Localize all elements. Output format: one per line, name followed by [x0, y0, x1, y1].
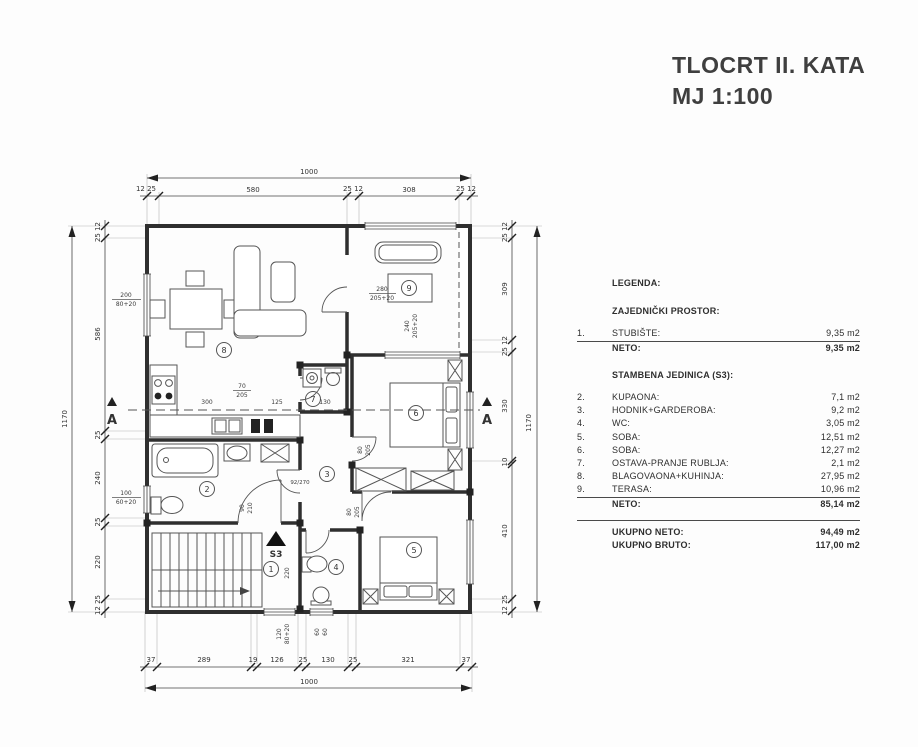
legend-row: 4. WC: 3,05 m2 — [577, 417, 860, 430]
label-d80a-sub: 205 — [365, 444, 372, 456]
row-number: 1. — [577, 327, 612, 340]
dim-left-5: 220 — [94, 555, 102, 568]
label-w240-sub: 205+20 — [412, 314, 419, 338]
dim-92-270: 92/270 — [290, 480, 310, 486]
blueprint-page: 1000 12 25 580 25 12 308 25 12 37 289 19… — [0, 0, 918, 747]
label-d80b-sub: 205 — [354, 506, 361, 518]
dim-top-0: 12 25 — [136, 185, 156, 193]
dim-bot-8: 37 — [462, 656, 471, 664]
bathtub — [152, 444, 218, 477]
dim-left-overall: 1170 — [61, 410, 69, 428]
room-3: 3 — [324, 470, 329, 479]
legend-divider — [577, 520, 860, 521]
label-w120-sub: 80+20 — [284, 624, 291, 644]
dim-bot-6: 25 — [349, 656, 358, 664]
stair-mark-label: S3 — [270, 550, 283, 560]
entrance-marker: S3 — [266, 531, 286, 560]
washer — [303, 368, 341, 387]
legend-row: 7. OSTAVA-PRANJE RUBLJA: 2,1 m2 — [577, 457, 860, 470]
legend-row: 3. HODNIK+GARDEROBA: 9,2 m2 — [577, 404, 860, 417]
dim-300: 300 — [201, 399, 213, 406]
dim-top-overall: 1000 — [300, 168, 318, 176]
dim-left-4: 25 — [94, 518, 102, 527]
dim-top-1: 580 — [246, 186, 259, 194]
dim-bot-7: 321 — [401, 656, 414, 664]
legend-row: 9. TERASA: 10,96 m2 — [577, 483, 860, 497]
legend-row: 5. SOBA: 12,51 m2 — [577, 431, 860, 444]
row-label: STUBIŠTE: — [612, 327, 798, 340]
label-d90: 90 — [239, 504, 246, 512]
label-w240: 240 — [404, 320, 411, 332]
legend-common-total: NETO: 9,35 m2 — [577, 342, 860, 355]
drawing-title: TLOCRT II. KATA — [672, 50, 865, 81]
dim-right-1: 309 — [501, 282, 509, 295]
sofa — [234, 246, 306, 338]
wardrobe-xbox — [356, 468, 454, 491]
stairs — [152, 533, 262, 607]
dim-130: 130 — [319, 399, 331, 406]
label-w100-sub: 60+20 — [116, 499, 136, 506]
legend-total-neto: UKUPNO NETO: 94,49 m2 — [577, 526, 860, 539]
legend-total-bruto: UKUPNO BRUTO: 117,00 m2 — [577, 539, 860, 552]
dim-bot-5: 130 — [321, 656, 334, 664]
dining-table-set — [150, 271, 239, 347]
label-w280-sub: 205+20 — [370, 295, 394, 302]
row-value: 9,35 m2 — [798, 327, 860, 340]
total-label: NETO: — [612, 342, 798, 355]
dim-top-2: 25 12 — [343, 185, 363, 193]
dim-bot-2: 19 — [249, 656, 258, 664]
label-d70: 70 — [238, 383, 246, 390]
dim-right-6: 12 25 — [501, 595, 509, 615]
room-9: 9 — [406, 284, 411, 293]
bath-shelf-xbox — [261, 444, 289, 462]
dim-right-5: 410 — [501, 524, 509, 537]
legend-row: 8. BLAGOVAONA+KUHINJA: 27,95 m2 — [577, 470, 860, 483]
label-w200: 200 — [120, 292, 132, 299]
room-1: 1 — [268, 565, 273, 574]
dim-right-3: 330 — [501, 399, 509, 412]
dim-left-6: 12 25 — [94, 595, 102, 615]
label-d80a: 80 — [357, 446, 364, 454]
toilet-room2 — [151, 497, 183, 515]
label-w120-group: 120 80+20 — [276, 624, 291, 644]
room-2: 2 — [204, 485, 209, 494]
dim-bottom-overall: 1000 — [300, 678, 318, 686]
label-w60-sub: 60 — [322, 628, 329, 636]
dim-bot-4: 25 — [299, 656, 308, 664]
terrace-furniture — [375, 242, 441, 302]
dim-bot-1: 289 — [197, 656, 210, 664]
room-6: 6 — [413, 409, 418, 418]
label-w280: 280 — [376, 286, 388, 293]
label-w60: 60 — [314, 628, 321, 636]
legend-row-stairs: 1. STUBIŠTE: 9,35 m2 — [577, 327, 860, 341]
legend-unit-title: STAMBENA JEDINICA (S3): — [577, 369, 860, 382]
label-w200-sub: 80+20 — [116, 301, 136, 308]
label-d80b: 80 — [346, 508, 353, 516]
legend-panel: LEGENDA: ZAJEDNIČKI PROSTOR: 1. STUBIŠTE… — [577, 277, 860, 552]
bed-room5 — [363, 537, 454, 604]
wc-washbasin — [311, 587, 331, 605]
dim-125: 125 — [271, 399, 283, 406]
dim-left-3: 240 — [94, 471, 102, 484]
title-block: TLOCRT II. KATA MJ 1:100 — [672, 50, 865, 112]
section-mark-right: A — [482, 413, 492, 428]
dim-right-overall: 1170 — [525, 414, 533, 432]
label-d80a-group: 80 205 — [357, 444, 372, 456]
dim-bot-3: 126 — [270, 656, 284, 664]
label-d80b-group: 80 205 — [346, 506, 361, 518]
dim-left-0: 25 12 — [94, 222, 102, 242]
section-mark-left: A — [107, 413, 117, 428]
label-w60-group: 60 60 — [314, 628, 329, 636]
label-d90-group: 90 210 — [239, 502, 254, 514]
dim-right-0: 25 12 — [501, 222, 509, 242]
dim-top-4: 25 12 — [456, 185, 476, 193]
legend-unit-total: NETO: 85,14 m2 — [577, 498, 860, 511]
dim-220: 220 — [284, 567, 291, 579]
dim-left-2: 25 — [94, 431, 102, 440]
legend-heading: LEGENDA: — [577, 277, 860, 290]
legend-row: 6. SOBA: 12,27 m2 — [577, 444, 860, 457]
label-w100: 100 — [120, 490, 132, 497]
legend-common-title: ZAJEDNIČKI PROSTOR: — [577, 305, 860, 318]
dim-left-1: 586 — [94, 327, 102, 341]
label-w240-group: 240 205+20 — [404, 314, 419, 338]
room-4: 4 — [333, 563, 338, 572]
room-7: 7 — [310, 395, 315, 404]
dim-right-4: 10 — [501, 458, 509, 467]
dim-right-2: 25 12 — [501, 336, 509, 356]
room-8: 8 — [221, 346, 226, 355]
dim-top-3: 308 — [402, 186, 415, 194]
dim-bot-0: 37 — [147, 656, 156, 664]
total-value: 9,35 m2 — [798, 342, 860, 355]
bed-room6 — [390, 360, 462, 470]
room-5: 5 — [411, 546, 416, 555]
legend-row: 2. KUPAONA: 7,1 m2 — [577, 391, 860, 404]
label-w120: 120 — [276, 628, 283, 640]
wc-toilet — [302, 556, 327, 572]
drawing-scale: MJ 1:100 — [672, 81, 865, 112]
bath-washbasin — [224, 444, 250, 461]
label-d70-sub: 205 — [236, 392, 248, 399]
label-d90-sub: 210 — [247, 502, 254, 514]
